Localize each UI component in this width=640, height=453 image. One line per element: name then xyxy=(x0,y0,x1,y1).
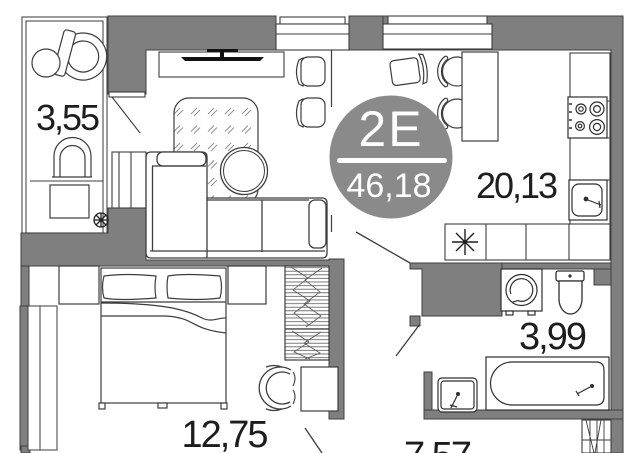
svg-text:12,75: 12,75 xyxy=(181,414,267,453)
svg-text:2E: 2E xyxy=(358,101,423,157)
svg-text:3,55: 3,55 xyxy=(36,97,99,138)
svg-text:20,13: 20,13 xyxy=(476,165,557,206)
svg-text:46,18: 46,18 xyxy=(346,167,431,205)
svg-text:7,57: 7,57 xyxy=(404,435,471,453)
svg-text:3,99: 3,99 xyxy=(519,316,586,358)
